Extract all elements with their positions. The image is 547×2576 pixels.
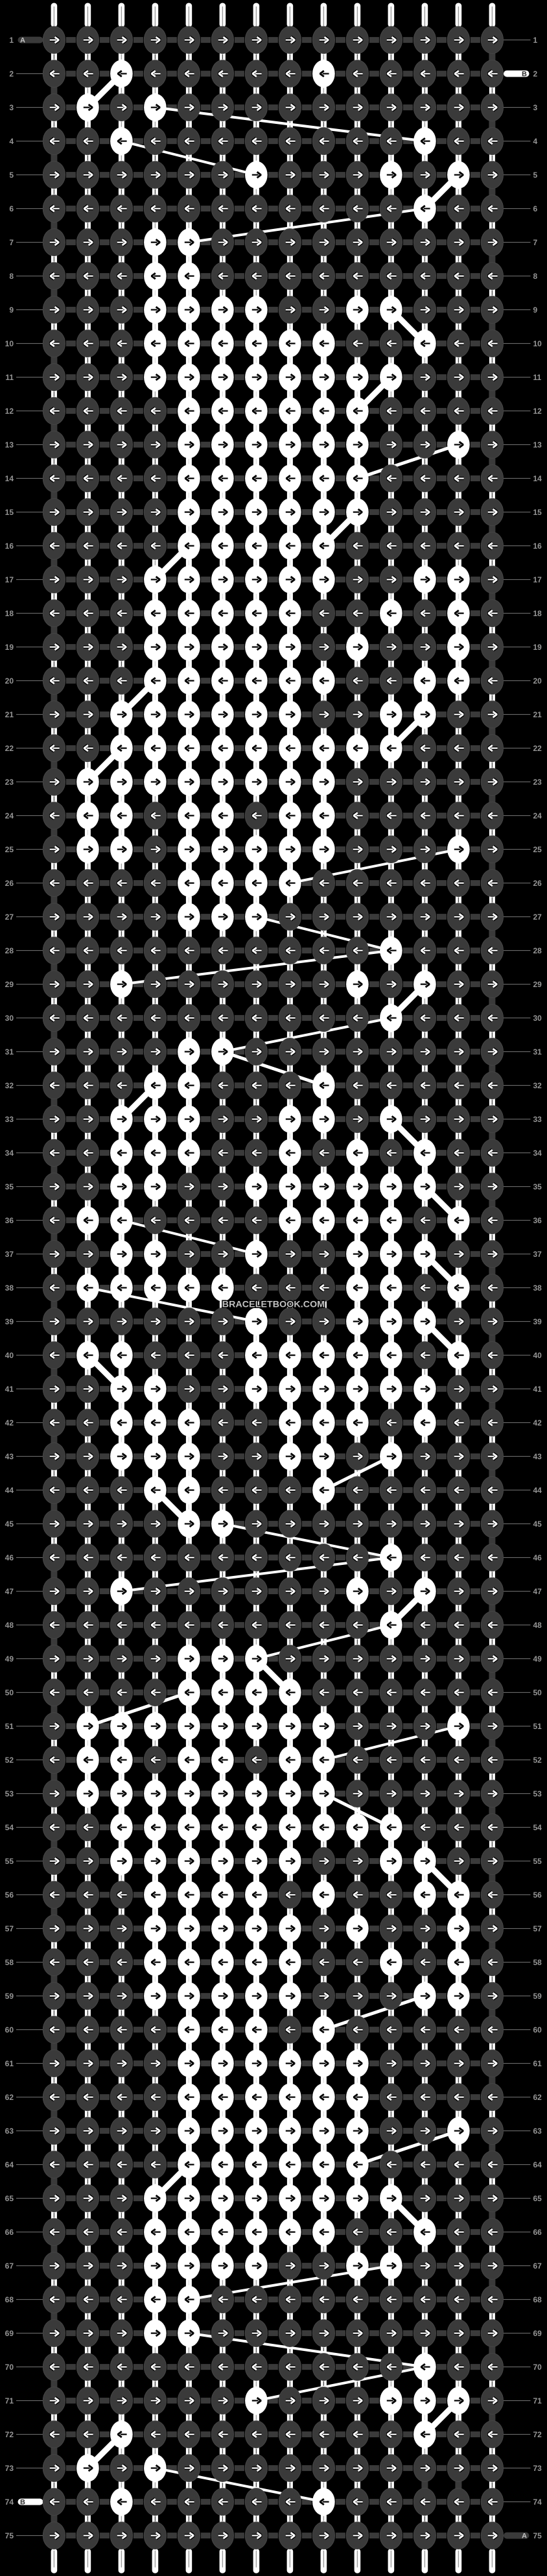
svg-text:36: 36 — [5, 1216, 14, 1225]
svg-text:45: 45 — [533, 1520, 542, 1529]
svg-text:32: 32 — [533, 1081, 542, 1090]
svg-text:34: 34 — [5, 1149, 14, 1158]
svg-text:9: 9 — [533, 305, 538, 315]
svg-text:66: 66 — [5, 2228, 14, 2237]
svg-text:65: 65 — [5, 2194, 14, 2203]
svg-text:73: 73 — [5, 2464, 14, 2473]
svg-text:29: 29 — [533, 980, 542, 989]
svg-text:30: 30 — [5, 1014, 14, 1023]
svg-text:44: 44 — [533, 1486, 542, 1495]
svg-text:57: 57 — [533, 1924, 542, 1933]
svg-text:36: 36 — [533, 1216, 542, 1225]
svg-text:48: 48 — [5, 1621, 14, 1630]
svg-text:29: 29 — [5, 980, 14, 989]
svg-text:56: 56 — [5, 1890, 14, 1900]
svg-text:28: 28 — [5, 946, 14, 955]
svg-text:55: 55 — [533, 1857, 542, 1866]
svg-text:16: 16 — [5, 542, 14, 551]
svg-text:58: 58 — [5, 1958, 14, 1967]
svg-text:41: 41 — [5, 1385, 14, 1394]
svg-text:37: 37 — [5, 1250, 14, 1259]
svg-text:1: 1 — [533, 36, 538, 45]
svg-text:39: 39 — [533, 1317, 542, 1326]
svg-text:39: 39 — [5, 1317, 14, 1326]
svg-text:6: 6 — [9, 204, 14, 213]
svg-text:67: 67 — [533, 2261, 542, 2271]
svg-text:21: 21 — [5, 710, 14, 719]
svg-text:20: 20 — [533, 676, 542, 686]
svg-text:43: 43 — [533, 1452, 542, 1461]
svg-text:59: 59 — [5, 1992, 14, 2001]
svg-text:4: 4 — [9, 137, 14, 146]
svg-text:62: 62 — [533, 2093, 542, 2102]
svg-text:34: 34 — [533, 1149, 542, 1158]
svg-text:22: 22 — [5, 744, 14, 753]
svg-text:37: 37 — [533, 1250, 542, 1259]
svg-text:65: 65 — [533, 2194, 542, 2203]
svg-text:2: 2 — [533, 69, 538, 78]
svg-text:70: 70 — [5, 2363, 14, 2372]
svg-text:27: 27 — [533, 912, 542, 922]
svg-text:50: 50 — [5, 1688, 14, 1697]
svg-text:5: 5 — [533, 171, 538, 180]
svg-text:48: 48 — [533, 1621, 542, 1630]
svg-text:8: 8 — [9, 272, 14, 281]
svg-text:18: 18 — [5, 609, 14, 618]
svg-text:55: 55 — [5, 1857, 14, 1866]
svg-text:28: 28 — [533, 946, 542, 955]
svg-text:33: 33 — [5, 1115, 14, 1124]
svg-text:42: 42 — [533, 1418, 542, 1427]
svg-text:5: 5 — [9, 171, 14, 180]
svg-text:38: 38 — [5, 1283, 14, 1293]
svg-text:61: 61 — [5, 2059, 14, 2068]
svg-text:46: 46 — [5, 1553, 14, 1562]
svg-text:19: 19 — [533, 643, 542, 652]
svg-text:53: 53 — [533, 1789, 542, 1798]
svg-text:17: 17 — [533, 575, 542, 584]
svg-text:31: 31 — [5, 1047, 14, 1056]
svg-text:46: 46 — [533, 1553, 542, 1562]
svg-text:56: 56 — [533, 1890, 542, 1900]
svg-text:71: 71 — [533, 2396, 542, 2405]
svg-text:72: 72 — [5, 2430, 14, 2439]
svg-text:8: 8 — [533, 272, 538, 281]
svg-text:69: 69 — [533, 2329, 542, 2338]
svg-text:60: 60 — [5, 2025, 14, 2034]
svg-text:7: 7 — [9, 238, 14, 247]
svg-text:64: 64 — [533, 2160, 542, 2169]
svg-text:4: 4 — [533, 137, 538, 146]
svg-text:45: 45 — [5, 1520, 14, 1529]
svg-text:67: 67 — [5, 2261, 14, 2271]
svg-text:42: 42 — [5, 1418, 14, 1427]
svg-text:25: 25 — [5, 845, 14, 854]
svg-text:70: 70 — [533, 2363, 542, 2372]
svg-text:69: 69 — [5, 2329, 14, 2338]
svg-text:32: 32 — [5, 1081, 14, 1090]
svg-text:72: 72 — [533, 2430, 542, 2439]
svg-text:75: 75 — [533, 2531, 542, 2540]
svg-text:59: 59 — [533, 1992, 542, 2001]
svg-text:24: 24 — [533, 811, 542, 820]
svg-text:24: 24 — [5, 811, 14, 820]
svg-text:23: 23 — [5, 778, 14, 787]
svg-text:15: 15 — [533, 508, 542, 517]
svg-text:11: 11 — [5, 373, 14, 382]
svg-text:41: 41 — [533, 1385, 542, 1394]
svg-text:BRACELETBOOK.COM: BRACELETBOOK.COM — [222, 1300, 325, 1310]
svg-text:3: 3 — [9, 103, 14, 112]
svg-text:9: 9 — [9, 305, 14, 315]
svg-text:61: 61 — [533, 2059, 542, 2068]
svg-text:47: 47 — [5, 1587, 14, 1596]
svg-text:19: 19 — [5, 643, 14, 652]
svg-text:58: 58 — [533, 1958, 542, 1967]
svg-text:3: 3 — [533, 103, 538, 112]
svg-text:10: 10 — [533, 339, 542, 348]
svg-text:71: 71 — [5, 2396, 14, 2405]
svg-text:31: 31 — [533, 1047, 542, 1056]
svg-text:12: 12 — [5, 407, 14, 416]
svg-text:16: 16 — [533, 542, 542, 551]
svg-text:38: 38 — [533, 1283, 542, 1293]
svg-text:52: 52 — [5, 1756, 14, 1765]
svg-text:51: 51 — [533, 1722, 542, 1731]
svg-text:54: 54 — [533, 1823, 542, 1832]
svg-text:26: 26 — [5, 879, 14, 888]
svg-text:52: 52 — [533, 1756, 542, 1765]
svg-text:20: 20 — [5, 676, 14, 686]
svg-text:50: 50 — [533, 1688, 542, 1697]
svg-text:11: 11 — [533, 373, 542, 382]
svg-text:18: 18 — [533, 609, 542, 618]
svg-text:49: 49 — [5, 1654, 14, 1664]
svg-text:60: 60 — [533, 2025, 542, 2034]
svg-text:6: 6 — [533, 204, 538, 213]
svg-text:14: 14 — [533, 474, 542, 483]
svg-text:49: 49 — [533, 1654, 542, 1664]
svg-text:13: 13 — [533, 440, 542, 449]
svg-text:68: 68 — [533, 2295, 542, 2304]
svg-text:A: A — [522, 2533, 527, 2540]
svg-text:17: 17 — [5, 575, 14, 584]
svg-text:44: 44 — [5, 1486, 14, 1495]
svg-text:54: 54 — [5, 1823, 14, 1832]
svg-text:10: 10 — [5, 339, 14, 348]
svg-text:21: 21 — [533, 710, 542, 719]
svg-text:14: 14 — [5, 474, 14, 483]
svg-text:40: 40 — [5, 1351, 14, 1360]
svg-text:63: 63 — [533, 2127, 542, 2136]
svg-text:23: 23 — [533, 778, 542, 787]
svg-text:12: 12 — [533, 407, 542, 416]
svg-text:40: 40 — [533, 1351, 542, 1360]
svg-text:26: 26 — [533, 879, 542, 888]
svg-text:74: 74 — [5, 2498, 14, 2507]
svg-text:75: 75 — [5, 2531, 14, 2540]
svg-text:66: 66 — [533, 2228, 542, 2237]
svg-text:35: 35 — [5, 1182, 14, 1191]
svg-text:15: 15 — [5, 508, 14, 517]
svg-text:74: 74 — [533, 2498, 542, 2507]
svg-text:51: 51 — [5, 1722, 14, 1731]
svg-text:A: A — [20, 37, 25, 45]
svg-text:68: 68 — [5, 2295, 14, 2304]
svg-text:33: 33 — [533, 1115, 542, 1124]
svg-text:1: 1 — [9, 36, 14, 45]
svg-text:7: 7 — [533, 238, 538, 247]
svg-text:B: B — [20, 2499, 25, 2507]
svg-text:2: 2 — [9, 69, 14, 78]
svg-text:25: 25 — [533, 845, 542, 854]
svg-text:30: 30 — [533, 1014, 542, 1023]
svg-text:64: 64 — [5, 2160, 14, 2169]
svg-text:47: 47 — [533, 1587, 542, 1596]
svg-text:22: 22 — [533, 744, 542, 753]
svg-text:B: B — [522, 71, 527, 78]
svg-text:63: 63 — [5, 2127, 14, 2136]
svg-text:73: 73 — [533, 2464, 542, 2473]
svg-text:27: 27 — [5, 912, 14, 922]
svg-text:57: 57 — [5, 1924, 14, 1933]
svg-text:35: 35 — [533, 1182, 542, 1191]
svg-text:53: 53 — [5, 1789, 14, 1798]
svg-text:13: 13 — [5, 440, 14, 449]
svg-text:43: 43 — [5, 1452, 14, 1461]
svg-text:62: 62 — [5, 2093, 14, 2102]
